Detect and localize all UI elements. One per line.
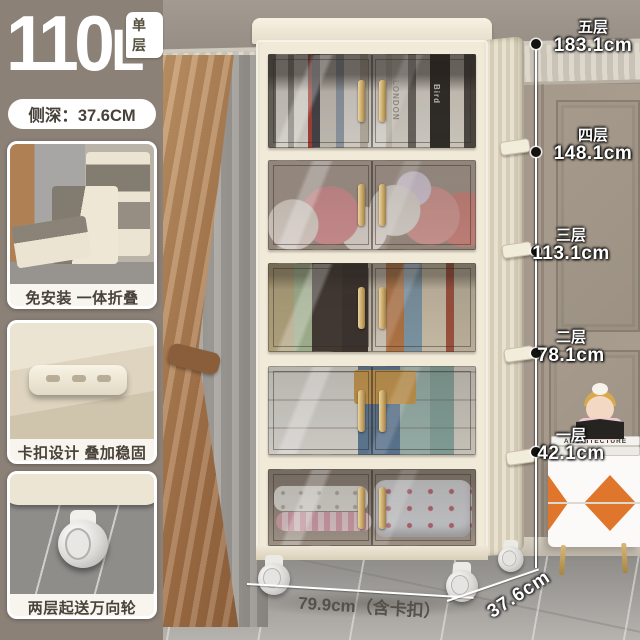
tier-height-label-5: 五层 183.1cm (538, 20, 640, 56)
tier-name: 三层 (516, 228, 626, 244)
tier-height-value: 113.1cm (516, 244, 626, 264)
door-frame-left (273, 268, 369, 347)
tier-height-label-2: 二层 78.1cm (516, 330, 626, 366)
buckle-clip (29, 365, 127, 395)
wheel-hub (65, 528, 91, 560)
height-measure-line (535, 44, 537, 568)
tier-height-label-3: 三层 113.1cm (516, 228, 626, 264)
gold-door-handle (358, 287, 365, 329)
tier-height-value: 183.1cm (538, 36, 640, 56)
gold-door-handle (379, 287, 386, 329)
door-frame-left (273, 59, 369, 143)
capacity-headline: 110L (6, 6, 144, 84)
tier-name: 二层 (516, 330, 626, 346)
folding-cabinets-photo (10, 144, 154, 284)
tier-height-label-4: 四层 148.1cm (538, 128, 640, 164)
feature-card-folding: 免安装 一体折叠 (7, 141, 157, 309)
cabinet-tier-4-plush-toys (268, 160, 476, 250)
drawer-seam (548, 502, 640, 504)
cabinet-tier-2-boxes (268, 366, 476, 455)
buckle-slot (46, 375, 60, 382)
cabinet-base (256, 546, 488, 560)
feature-card-wheels: 两层起送万向轮 (7, 471, 157, 619)
door-frame-right (375, 165, 471, 245)
tier-height-value: 42.1cm (516, 444, 626, 464)
tier-height-value: 148.1cm (538, 144, 640, 164)
tier-name: 四层 (538, 128, 640, 144)
gold-door-handle (358, 390, 365, 432)
gold-door-handle (379, 184, 386, 226)
caster-wheel-closeup (58, 510, 110, 570)
single-layer-badge: 单层 (126, 12, 163, 58)
buckle-slot (97, 375, 111, 382)
gold-door-handle (358, 80, 365, 122)
door-frame-left (273, 165, 369, 245)
feature-caption: 卡扣设计 叠加稳固 (10, 439, 154, 464)
cabinet-side-panel (486, 36, 524, 556)
gold-door-handle (379, 487, 386, 529)
door-frame-right (375, 371, 471, 450)
product-image: LONDON Bird (0, 0, 640, 640)
mini-cabinet-edge (10, 474, 154, 505)
side-depth-pill: 侧深：37.6CM (8, 99, 156, 129)
info-panel: 110L 单层 侧深：37.6CM 免安装 一体折叠 卡扣设计 叠加稳固 (0, 0, 163, 640)
doll-headband (592, 383, 608, 395)
door-frame-right (375, 474, 471, 541)
gold-door-handle (379, 80, 386, 122)
cabinet-tier-3-snacks (268, 263, 476, 352)
tier-height-label-1: 一层 42.1cm (516, 428, 626, 464)
nightstand (548, 455, 640, 547)
capacity-value: 110 (6, 0, 110, 87)
gold-door-handle (358, 487, 365, 529)
wheel-hub (502, 550, 516, 566)
tier-name: 五层 (538, 20, 640, 36)
tier-height-value: 78.1cm (516, 346, 626, 366)
door-frame-left (273, 371, 369, 450)
feature-caption: 两层起送万向轮 (10, 594, 154, 619)
cabinet-tier-1-bedding (268, 469, 476, 546)
gold-door-handle (379, 390, 386, 432)
door-frame-right (375, 59, 471, 143)
buckle-slot (72, 375, 86, 382)
buckle-closeup-photo (10, 323, 154, 439)
gold-door-handle (358, 184, 365, 226)
door-frame-right (375, 268, 471, 347)
feature-card-buckle: 卡扣设计 叠加稳固 (7, 320, 157, 464)
wheel-closeup-photo (10, 474, 154, 594)
cabinet-tier-5-books: LONDON Bird (268, 54, 476, 148)
feature-caption: 免安装 一体折叠 (10, 284, 154, 309)
door-frame-left (273, 474, 369, 541)
tier-name: 一层 (516, 428, 626, 444)
